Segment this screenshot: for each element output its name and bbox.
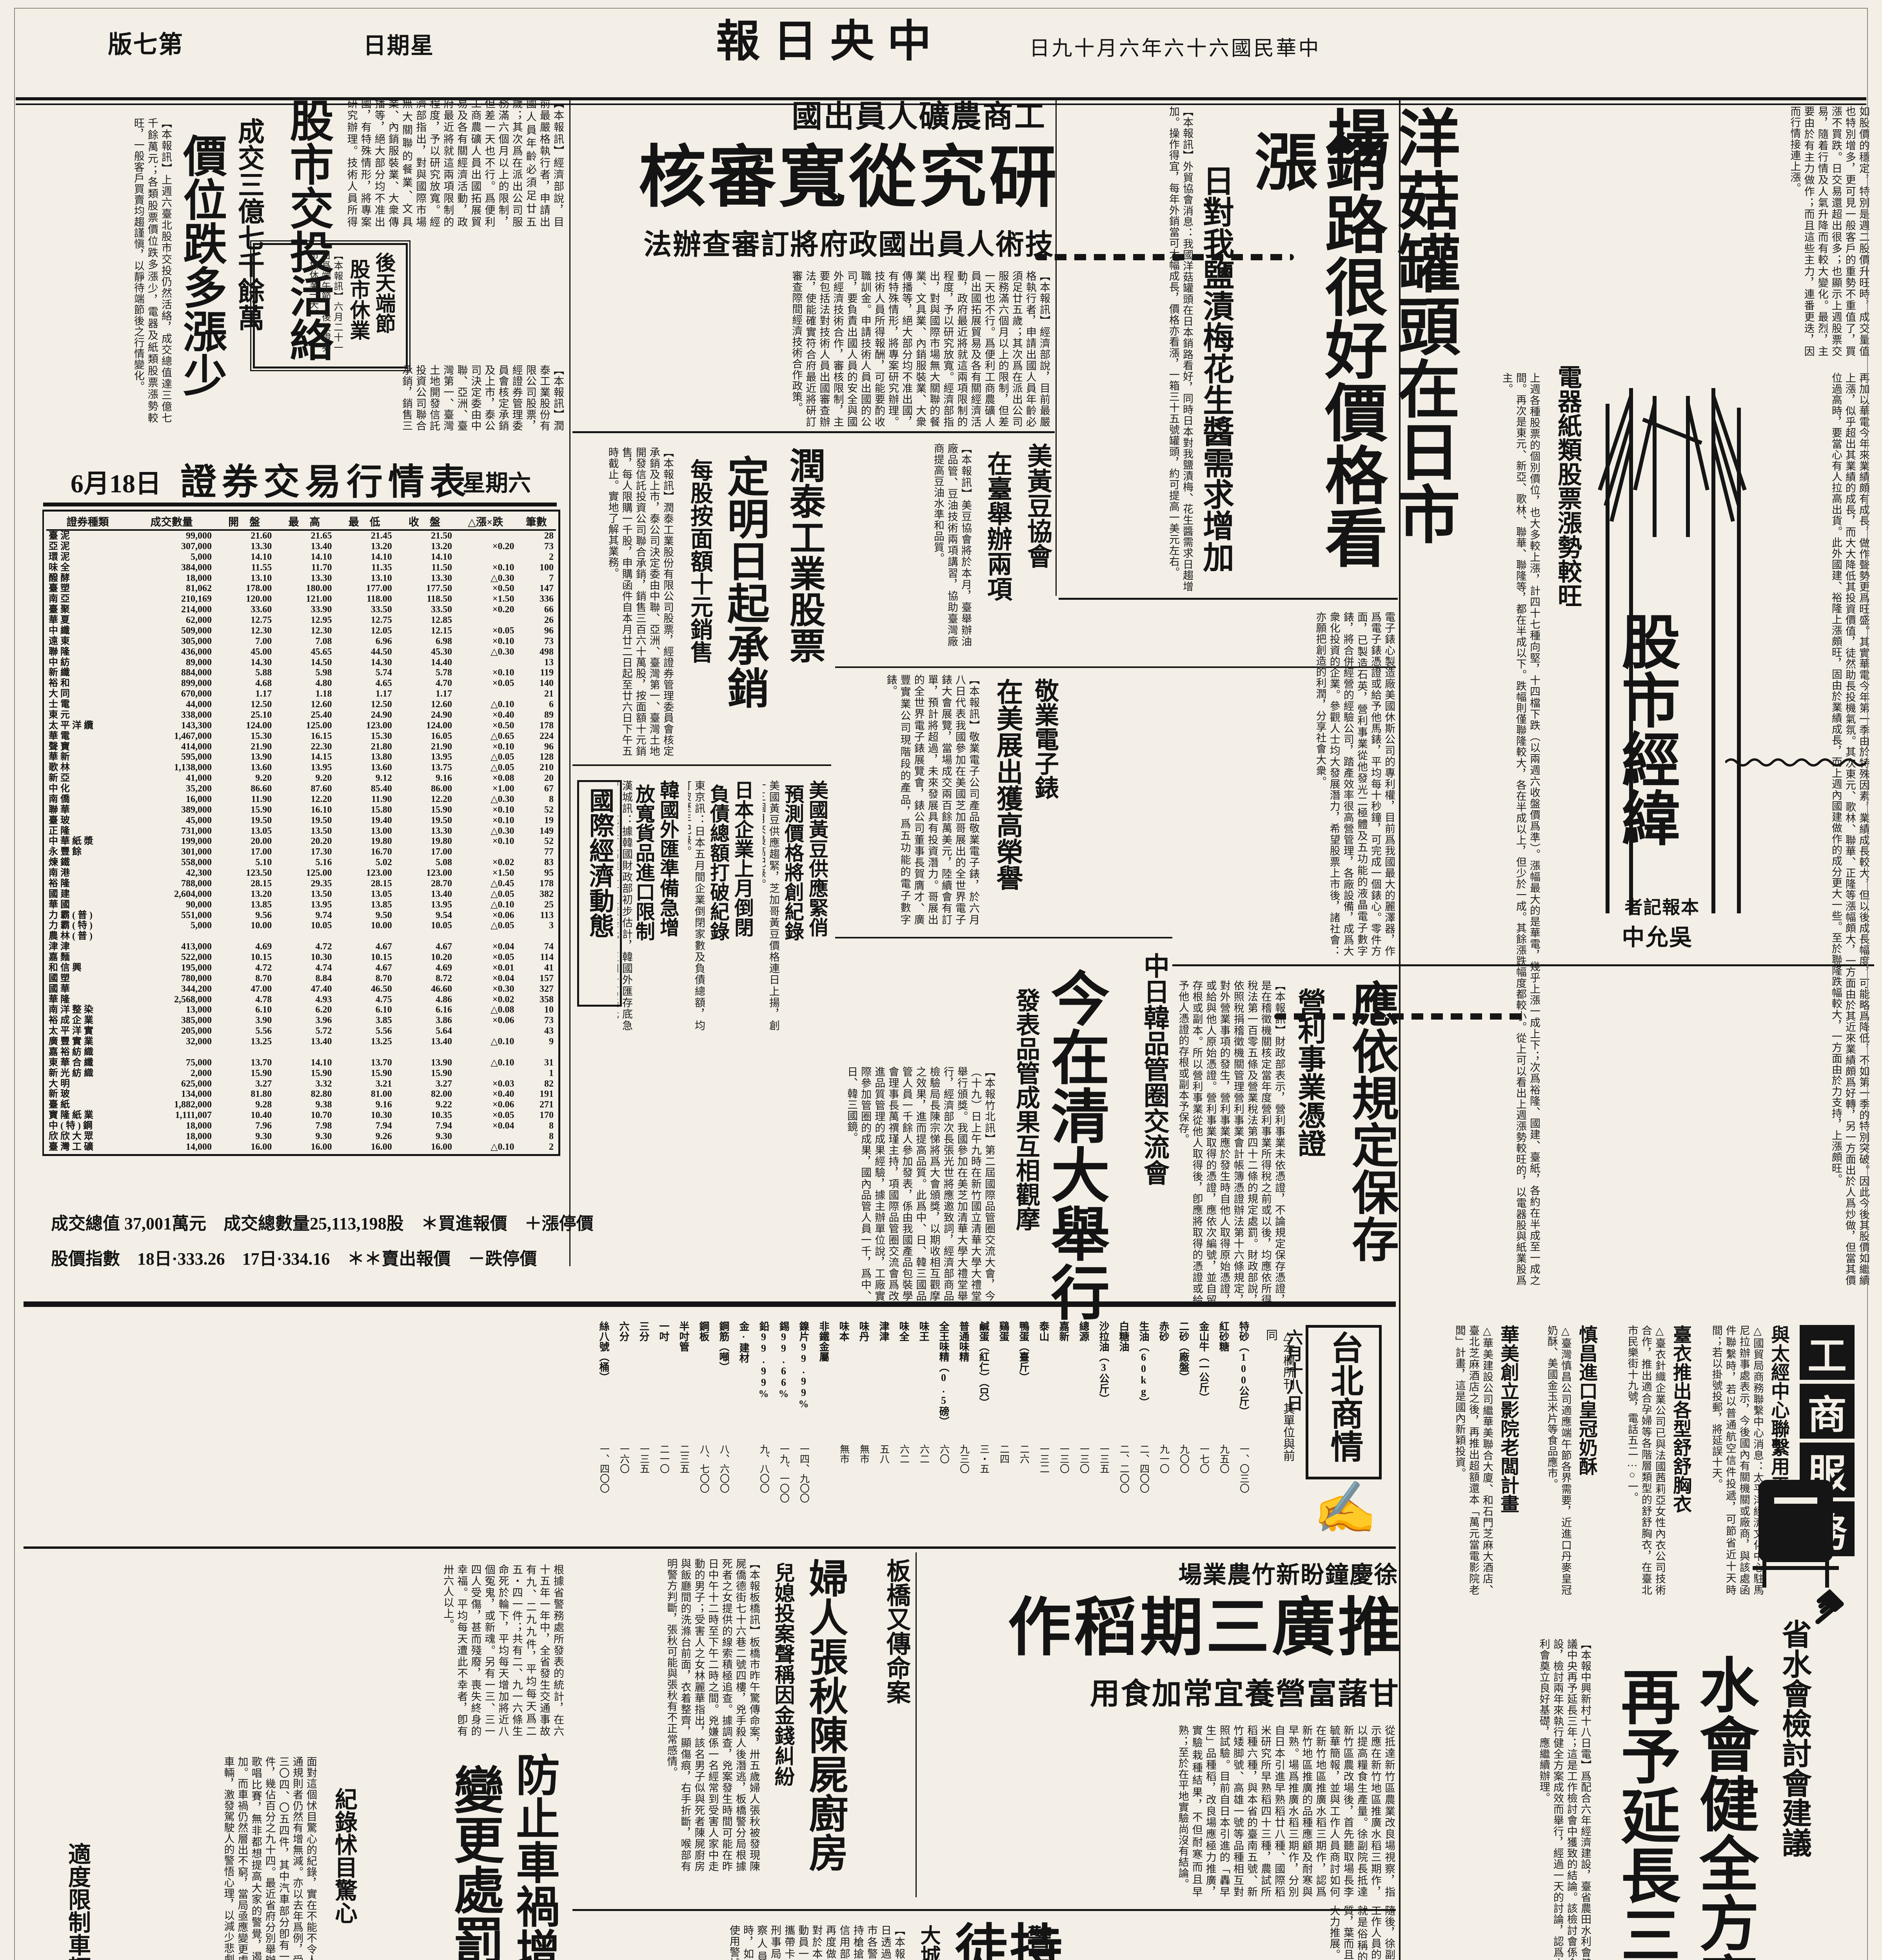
commodity-name: 金山牛（一公斤） <box>1196 1321 1211 1439</box>
robbery-headline: 持槍搶刧歹徒 <box>949 1921 1058 1960</box>
stock-table-row: 華新595,00013.9014.1513.8013.95△0.05128 <box>46 752 556 762</box>
commodity-price: 一七〇 <box>1197 1444 1211 1526</box>
commodity-name: 鴨蛋（臺斤） <box>1016 1321 1031 1439</box>
stock-table-row: 煉鐵558,0005.105.165.025.08×0.0283 <box>46 857 556 868</box>
stock-table-row: 永豐餘301,00017.0017.3016.7017.0077 <box>46 847 556 857</box>
commodity-name: 生油（60kg） <box>1136 1321 1151 1439</box>
commodity-price: 二、二〇〇 <box>1117 1444 1131 1526</box>
stock-table-row: 華國90,00013.8513.9513.8513.95△0.1025 <box>46 900 556 910</box>
commodity-item: 鎳片99.99%一四、九〇〇 <box>796 1321 811 1526</box>
commodity-price: 五八 <box>877 1444 891 1526</box>
stock-table-row: 大同670,0001.171.181.171.1721 <box>46 689 556 699</box>
commodity-item: 鹹蛋（紅仁）（只）三・五 <box>976 1321 991 1526</box>
water-headline-2: 再予延長三年 <box>1611 1666 1678 1960</box>
hrule-e3 <box>572 1909 1396 1911</box>
biz-item-4-body: △華美建設公司繼華美聯合大廈、和石門芝麻大酒店、臺北芝麻酒店之後，再推出超額還本… <box>1439 1325 1494 1595</box>
stock-table: 證券種類 成交數量 開 盤 最 高 最 低 收 盤 △漲×跌 筆數 臺泥99,0… <box>42 510 560 1156</box>
vrule-a2 <box>1055 98 1057 596</box>
commodity-name: 特砂（100公斤） <box>1236 1321 1251 1439</box>
intl-brief-2-body: 東京訊：日本五月間企業倒閉家數及負債總額，均打破歷年紀錄。 <box>688 780 706 1031</box>
stock-table-row: 津津413,0004.694.724.674.67×0.0474 <box>46 942 556 952</box>
commodity-name: 總源 <box>1076 1321 1091 1439</box>
commodity-price: 二、四〇〇 <box>1137 1444 1151 1526</box>
stock-table-row: 太平洋實205,0005.565.725.565.6443 <box>46 1026 556 1036</box>
traffic-headline-1: 防止車禍增加 <box>510 1752 557 1960</box>
commodity-item: 鋼筋（噸）八、六〇〇 <box>716 1321 731 1526</box>
commodity-price: 無市 <box>837 1444 851 1526</box>
commodity-name: 味丹 <box>856 1321 871 1439</box>
rice-kicker: 徐慶鐘盼新竹農業場 <box>1059 1562 1396 1587</box>
commodity-item: 全王味精（0.5磅）六〇 <box>936 1321 951 1526</box>
stock-table-row: 嘉裕紡織 <box>46 1047 556 1058</box>
commodity-name: 沙拉油（3公斤） <box>1096 1321 1111 1439</box>
stock-table-row: 裕成企業385,0003.903.963.853.86×0.0673 <box>46 1015 556 1026</box>
stock-table-row: 力霸(普)551,0009.569.749.509.54×0.06113 <box>46 910 556 921</box>
voucher-headline: 應依規定保存 <box>1345 980 1397 1313</box>
jingye-headline: 在美展出獲高榮譽 <box>988 678 1027 913</box>
stock-table-row: 嘉麵522,00010.1510.3010.1510.20×0.05114 <box>46 952 556 963</box>
mushroom-subhead: 日對我鹽漬梅花生醬需求增加 <box>1199 165 1232 596</box>
stock-table-row: 中(特)鋼18,0007.967.987.947.94×0.048 <box>46 1121 556 1131</box>
commodity-name: 錫99.66% <box>776 1321 791 1439</box>
intl-brief-1-body: 美國黃豆供應趨緊，芝加哥黃豆價格連日上揚，創十三個月來最高紀錄。 <box>763 780 780 1031</box>
stock-table-row: 中紡89,00014.3014.5014.3014.4013 <box>46 657 556 668</box>
commodity-name: 鷄蛋 <box>996 1321 1011 1439</box>
gujing-byline-label: 本報記者 <box>1604 898 1698 917</box>
rice-headline: 推廣三期稻作 <box>1004 1593 1396 1660</box>
intl-brief-3-line1: 韓國外匯準備急增 <box>654 780 682 960</box>
commodity-name: 白糖油 <box>1116 1321 1131 1439</box>
stock-table-row: 士電44,00012.5012.6012.5012.60△0.106 <box>46 699 556 710</box>
stock-table-row: 聯華389,00015.9016.1015.8015.90×0.1052 <box>46 805 556 815</box>
stock-table-body: 臺泥99,00021.6021.6521.4521.5028亞泥307,0001… <box>46 530 556 1152</box>
rice-subhead: 甘藷富營養宜常加食用 <box>972 1678 1396 1710</box>
voucher-kicker: 營利事業憑證 <box>1294 988 1324 1207</box>
biz-item-2-head: 臺衣推出各型舒舒胸衣 <box>1666 1325 1694 1592</box>
biz-item-3-head: 慎昌進口皇冠奶酥 <box>1572 1325 1600 1592</box>
abroad-subhead: 技術人員出國政府將訂審查辦法 <box>576 229 1051 260</box>
commodity-name: 絲八號（桶） <box>596 1321 611 1439</box>
traffic-body2: 面對這個怵目驚心的紀錄，實在不能不令人警惕。可是違反交通規則者仍然有增無減。亦以… <box>98 1756 318 1960</box>
hrule-b2 <box>572 764 831 766</box>
vrule-right <box>1399 98 1401 1960</box>
holiday-title-1: 後天端節 <box>369 252 398 350</box>
banqiao-headline: 婦人張秋陳屍廚房 <box>804 1558 845 1880</box>
stocks-active-body-2: 【本報訊】經濟部說，目前最嚴格執行者，申請出國人員年齡必須足廿五歲；其次爲在派出… <box>345 98 565 227</box>
runtai-body: 【本報訊】潤泰工業股份有限公司股票，經證券管理委員會核定承銷及上市，泰公司決定委… <box>572 447 674 757</box>
commodity-item: 赤砂九一〇 <box>1156 1321 1171 1526</box>
commodity-item: 六分一六〇 <box>616 1321 631 1526</box>
stock-table-row: 南僑16,00011.9012.2011.9012.20△0.308 <box>46 794 556 805</box>
stock-table-row: 華夏62,00012.7512.9512.7512.8526 <box>46 615 556 626</box>
stock-totals-1: 成交總值 37,001萬元 成交總數量25,113,198股 ＊買進報價 ＋漲停… <box>51 1209 594 1234</box>
commodity-price: 六二 <box>917 1444 931 1526</box>
intl-brief-2-line2: 負債總額打破紀錄 <box>704 784 732 964</box>
commodity-item: 鋼板八、七〇〇 <box>696 1321 711 1526</box>
stock-table-row: 新纖884,0005.885.985.745.78×0.10119 <box>46 668 556 678</box>
stock-table-row: 正隆731,00013.0513.5013.0013.30△0.30149 <box>46 826 556 837</box>
commodity-item: 嘉新一三〇 <box>1056 1321 1071 1526</box>
abroad-kicker: 工商農礦人員出國 <box>612 100 1043 132</box>
water-body: 【本報中興新村十八日電】爲配合六年經濟建設，臺省農田水利會健全方案，工作檢討會昨… <box>1408 1639 1592 1960</box>
commodity-name: 津津 <box>876 1321 891 1439</box>
biz-item-3-body: △臺灣慎昌公司適應端午節各界需要，近進口丹麥皇冠奶酥、美國金玉米片等食品應市。 <box>1529 1325 1572 1595</box>
soybean-body: 【本報訊】美豆協會將於本月，臺舉辦油廠品管、豆油技術兩項講習，協助臺灣廠商提高豆… <box>859 443 972 647</box>
gujing-byline: 吳允中 <box>1611 925 1690 949</box>
commodity-name: 六分 <box>616 1321 631 1439</box>
intl-brief-1-line2: 預測價格將創紀錄 <box>779 784 807 964</box>
commodity-item: 味本無市 <box>836 1321 851 1526</box>
stock-table-row: 中化35,20086.6087.6085.4086.00×1.0067 <box>46 784 556 794</box>
stock-table-row: 聲寶414,00021.9022.3021.8021.90×0.1096 <box>46 742 556 752</box>
commodity-name: 普通味精 <box>956 1321 971 1439</box>
writing-hand-icon: ✍ <box>1313 1478 1377 1538</box>
qc-subhead: 發表品管成果互相觀摩 <box>1008 988 1043 1301</box>
traffic-headline-2: 變更處罰方式 <box>447 1764 501 1960</box>
intl-briefs: 美國黃豆供應緊俏 預測價格將創紀錄 美國黃豆供應趨緊，芝加哥黃豆價格連日上揚，創… <box>619 780 831 1054</box>
commodity-item: 味王六二 <box>916 1321 931 1526</box>
weekday-label: 星期日 <box>345 33 431 58</box>
banqiao-kicker: 板橋又傳命案 <box>878 1558 914 1723</box>
stock-table-row: 臺玻45,00019.5019.5019.4019.50×0.1019 <box>46 815 556 826</box>
rice-body: 從抵達新竹區農業改良場視察，指示應在新竹地區推廣水稻三期作，以提高糧食生產量。徐… <box>921 1725 1396 1897</box>
commodity-price: 九〇〇 <box>1177 1444 1191 1526</box>
rice-body2: 隨後，徐副院長巡視稻作田間實驗工作，對於工作人員的辛勞甚表嘉許。徐副院長說：甘藷… <box>1172 1905 1396 1960</box>
soybean-kicker: 美黃豆協會 <box>1019 443 1055 608</box>
stock-table-date: 6月18日 <box>71 463 161 500</box>
vrule-a1 <box>569 98 570 1266</box>
banqiao-body: 【本報板橋訊】板橋市昨午驚傳命案，卅五歲婦人張秋被發現陳屍僑德街七十六巷二號四樓… <box>572 1558 761 1872</box>
commodity-item: 味全六二 <box>896 1321 911 1526</box>
gujing-body2: 如股價的穩定，特別是週二股價升旺時，成交量值也特別增多，更可見一般客戶的重勢不重… <box>1408 106 1870 357</box>
commodity-name: 味王 <box>916 1321 931 1439</box>
stock-table-row: 國華344,20047.0047.4046.5046.60×0.30327 <box>46 984 556 995</box>
commodity-name: 二砂（廠盤） <box>1176 1321 1191 1439</box>
stock-table-weekday: 星期六 <box>463 465 531 497</box>
water-headline-1: 水會健全方案 <box>1690 1654 1757 1960</box>
stock-totals-2: 股價指數 18日·333.26 17日·334.16 ＊＊賣出報價 －跌停價 <box>51 1245 537 1270</box>
commodity-item: 金·建材 <box>736 1321 751 1526</box>
biz-box-char-1: 工 <box>1800 1325 1855 1380</box>
biz-box-char-2: 商 <box>1800 1384 1855 1439</box>
qc-body: 【本報竹北訊】第二屆國際品管圈交流大會，今（十九）日上午九時在新竹國立清華大學大… <box>737 1066 996 1301</box>
taipei-market-note: △本欄所刊 其單位與前同 <box>1262 1329 1296 1470</box>
commodity-price: 一三二 <box>1037 1444 1051 1526</box>
robbery-body: 【本報訊】刑事警察局昨日透過八號分機，通令省市各警察機關，嚴密搜捕持槍搶刧彰化竹… <box>576 1925 906 1960</box>
holiday-title-2: 股市休業 <box>343 259 372 357</box>
taipei-market-box: 台北商情 <box>1306 1325 1382 1479</box>
commodity-item: 半吋管二三五 <box>676 1321 691 1526</box>
runtai-teaser: 【本報訊】潤泰工業股份有限公司股票，經證券管理委員會核定承銷及上市，泰公司決定委… <box>400 365 565 431</box>
commodity-price: 八、六〇〇 <box>717 1444 731 1526</box>
commodity-name: 味全 <box>896 1321 911 1439</box>
hrule-mushroom-bot <box>1059 598 1398 600</box>
commodity-name: 三分 <box>636 1321 651 1439</box>
commodity-price: 一三五 <box>1097 1444 1111 1526</box>
stock-table-row: 華電1,467,00015.3016.1515.3016.05△0.65224 <box>46 731 556 742</box>
commodity-item: 總源一三〇 <box>1076 1321 1091 1526</box>
stock-table-row: 中纖509,00012.3012.3012.0512.15×0.0596 <box>46 626 556 636</box>
hrule-strip-top <box>24 1301 1396 1307</box>
jingye-body: 【本報訊】敬業電子公司產品敬業電子錶，於六月八日代表我國參加在美國芝加哥展出的全… <box>835 674 980 925</box>
commodity-item: 鉛99.99%九、八〇〇 <box>756 1321 771 1526</box>
stock-table-row: 欣欣大眾18,0009.309.309.269.308 <box>46 1131 556 1142</box>
hrule-strip-bot <box>24 1546 1396 1549</box>
commodity-item: 津津五八 <box>876 1321 891 1526</box>
commodity-price: 一四、九〇〇 <box>797 1444 811 1526</box>
masthead-date: 中華民國六十六年六月十九日 <box>1012 37 1317 59</box>
intl-brief-1-line1: 美國黃豆供應緊俏 <box>803 780 831 960</box>
stocks-active-body: 【本報訊】上週六臺北股市交投仍然活絡，成交總值達三億七千餘萬元；各類股票價位跌多… <box>24 118 173 423</box>
stock-table-row: 臺泥99,00021.6021.6521.4521.5028 <box>46 530 556 541</box>
mailbox-graphic <box>1737 1458 1855 1592</box>
commodity-item: 鷄蛋二四 <box>996 1321 1011 1526</box>
stock-table-row: 味全384,00011.5511.7011.3511.50×0.10100 <box>46 563 556 573</box>
stock-table-row: 和信興195,0004.724.744.674.69×0.0141 <box>46 963 556 973</box>
edition-label: 第七版 <box>78 31 180 57</box>
qc-headline: 今在清大舉行 <box>1043 968 1106 1352</box>
stock-table-row: 南亞210,169120.00121.00118.00118.50×1.5033… <box>46 594 556 604</box>
commodity-price: 一、〇三〇 <box>1237 1444 1251 1526</box>
traffic-body: 根據省警務處所發表的統計，在六十五年一年中，全省發生交通事故有九、二九九件，平均… <box>298 1564 565 1737</box>
commodity-price: 二六 <box>1017 1444 1031 1526</box>
traffic-sub2: 紀錄怵目驚心 <box>327 1788 360 1952</box>
stock-table-row: 國建2,604,00013.2013.5013.0513.40△0.05382 <box>46 889 556 900</box>
commodity-price: 二三五 <box>677 1444 691 1526</box>
commodity-price: 一九、一〇〇 <box>777 1444 791 1526</box>
holiday-notice-box: 後天端節 股市休業 【本報訊】六月二十一日爲端午節，後天證券市場休業一天。 <box>253 243 408 368</box>
gujing-title: 股市經緯 <box>1611 612 1679 886</box>
commodity-name: 一吋 <box>656 1321 671 1439</box>
intl-brief-2-line1: 日本企業上月倒閉 <box>728 780 757 960</box>
commodity-item: 紅砂糖九五〇 <box>1216 1321 1231 1526</box>
commodity-item: 三分一三五 <box>636 1321 651 1526</box>
runtai-subhead: 每股按面額十元銷售 <box>683 459 716 733</box>
intl-brief-3-body: 漢城訊：據韓國財政部初步估計，韓國外匯存底急增，月底更可高達三十五億美元，至四千… <box>618 780 633 1031</box>
commodity-item: 沙拉油（3公斤）一三五 <box>1096 1321 1111 1526</box>
stock-table-row: 聯隆436,00045.0045.6544.5045.30△0.30498 <box>46 647 556 657</box>
stocks-active-sub2: 價位跌多漲少 <box>176 133 225 423</box>
commodity-price: 三・五 <box>977 1444 991 1526</box>
intl-brief-3-line2: 放寬貨品進口限制 <box>630 784 658 964</box>
hrule-b1 <box>572 431 1055 433</box>
commodity-price: 六二 <box>897 1444 911 1526</box>
stock-table-header: 證券種類 成交數量 開 盤 最 高 最 低 收 盤 △漲×跌 筆數 <box>46 513 556 530</box>
commodity-item: 一吋二一〇 <box>656 1321 671 1526</box>
commodity-item: 非鐵金屬 <box>816 1321 831 1526</box>
commodity-item: 特砂（100公斤）一、〇三〇 <box>1236 1321 1251 1526</box>
stock-table-row: 太平洋纜143,300124.00125.00123.00124.00×0.50… <box>46 720 556 731</box>
commodity-price: 九、八〇〇 <box>757 1444 771 1526</box>
commodity-name: 鉛99.99% <box>756 1321 771 1439</box>
commodity-name: 鋼筋（噸） <box>716 1321 731 1439</box>
commodity-item: 金山牛（一公斤）一七〇 <box>1196 1321 1211 1526</box>
abroad-headline: 研究從寬審核 <box>612 141 1051 212</box>
stock-table-row: 臺塑81,062178.00180.00177.00177.50×0.50147 <box>46 583 556 594</box>
commodity-price: 無市 <box>857 1444 871 1526</box>
commodity-price: 一三五 <box>637 1444 651 1526</box>
soybean-headline: 在臺舉辦兩項 <box>979 451 1015 639</box>
taipei-market-title: 台北商情 <box>1326 1331 1361 1472</box>
mushroom-body: 【本報訊】外貿協會消息：我國洋菇罐頭在日本銷路看好，同時日本對我鹽漬梅、花生醬需… <box>1061 106 1194 592</box>
stock-table-row: 臺紙1,882,0009.289.389.169.22×0.06271 <box>46 1100 556 1110</box>
stock-table-row: 農林(普) <box>46 931 556 942</box>
mushroom-headline-2: 銷路很好價格看漲 <box>1245 129 1385 623</box>
stock-table-row: 環泥5,00014.1014.1014.1014.102 <box>46 552 556 563</box>
stock-table-row: 遠東305,0007.007.086.966.98×0.1073 <box>46 636 556 647</box>
stock-table-row: 亞泥307,00013.3013.4013.2013.20×0.2073 <box>46 541 556 552</box>
qc-kicker: 中日韓品管圈交流會 <box>1135 953 1173 1243</box>
commodity-name: 鋼板 <box>696 1321 711 1439</box>
stock-table-row: 新亞41,0009.209.209.129.16×0.0820 <box>46 773 556 784</box>
commodity-price: 八、七〇〇 <box>697 1444 711 1526</box>
stock-table-row: 新光紡織2,00015.9015.9015.9015.901 <box>46 1068 556 1079</box>
stock-table-row: 醱酵18,00013.1013.3013.1013.30△0.307 <box>46 573 556 584</box>
hrule-qc <box>835 937 1172 938</box>
stock-title-rule <box>43 503 557 506</box>
masthead-title: 中央日報 <box>714 18 933 65</box>
commodity-item: 白糖油二、二〇〇 <box>1116 1321 1131 1526</box>
commodity-name: 金·建材 <box>736 1321 751 1439</box>
stock-table-row: 東華合纖75,00013.7014.1013.7013.90△0.1031 <box>46 1058 556 1068</box>
stock-table-row: 力霸(特)5,00010.0010.0510.0010.05△0.053 <box>46 920 556 931</box>
commodity-name: 紅砂糖 <box>1216 1321 1231 1439</box>
stock-table-row: 廣豐實業32,00013.2513.4013.2513.40△0.109 <box>46 1036 556 1047</box>
stock-table-title: 證券交易行情表 <box>180 453 471 505</box>
abroad-body: 【本報訊】經濟部說，目前最嚴格執行者，申請出國人員年齡必須足廿五歲；其次爲在派出… <box>572 270 1051 427</box>
commodity-price: 六〇 <box>937 1444 951 1526</box>
stock-table-row: 國塑780,0008.708.848.708.72×0.04157 <box>46 973 556 984</box>
gujing-body3: 再加以華電今年來業績頗有成長，做作聲勢更爲旺盛。其實華電今年第一季由於特殊因素，… <box>1698 372 1870 1286</box>
traffic-sub1: 適度限制車輛 <box>61 1842 94 1960</box>
commodity-name: 嘉新 <box>1056 1321 1071 1439</box>
stock-table-row: 中華紙漿199,00020.0020.2019.8019.80×0.1052 <box>46 836 556 847</box>
biz-item-4-head: 華美創立影院老闆計畫 <box>1494 1325 1521 1592</box>
commodity-item: 普通味精九三〇 <box>956 1321 971 1526</box>
stock-table-row: 東元338,00025.1025.4024.9024.90×0.4089 <box>46 710 556 720</box>
commodity-item: 絲八號（桶）一、四〇〇 <box>596 1321 611 1526</box>
biz-item-2-body: △臺衣針織企業公司已與法國茜莉亞女性內衣公司技術合作，推出適合孕婦等各階層類型的… <box>1608 1325 1666 1595</box>
intl-section-title: 國際經濟動態 <box>577 780 622 1007</box>
commodity-price: 九三〇 <box>957 1444 971 1526</box>
runtai-headline: 定明日起承銷 <box>721 455 767 745</box>
voucher-body: 【本報訊】財政部表示，營利事業未依憑證，不論規定保存憑證，是在稽徵機關核定當年度… <box>1176 980 1286 1305</box>
vrule-d1 <box>916 1552 917 1897</box>
gujing-body: 上週各種股票的個別價位，也大多較上漲，計四十七種向堅，十四檔下跌（以兩週六收盤價… <box>1408 372 1541 1286</box>
stock-table-row: 大明625,0003.273.323.213.27×0.0382 <box>46 1079 556 1089</box>
commodity-name: 味本 <box>836 1321 851 1439</box>
stock-table-row: 裕隆788,00028.1529.3528.1528.70△0.45178 <box>46 878 556 889</box>
commodity-name: 鎳片99.99% <box>796 1321 811 1439</box>
commodity-price: 一三〇 <box>1057 1444 1071 1526</box>
commodity-item: 味丹無市 <box>856 1321 871 1526</box>
stock-table-row: 南港42,300123.50125.00123.00123.00×1.5095 <box>46 868 556 878</box>
commodity-price: 一三〇 <box>1077 1444 1091 1526</box>
stock-table-row: 新玻134,00081.8082.8081.0082.00×0.40191 <box>46 1089 556 1100</box>
newspaper-page: 第七版 星期日 中央日報 中華民國六十六年六月十九日 【本報訊】上週六臺北股市交… <box>0 0 1882 1960</box>
stock-table-row: 寶隆紙業1,111,00710.4010.7010.3010.35×0.0517… <box>46 1110 556 1121</box>
water-kicker: 省水會檢討會建議 <box>1772 1619 1815 1909</box>
commodity-name: 全王味精（0.5磅） <box>936 1321 951 1439</box>
jingye-body2: 電子錶心製造廠美國休斯公司的專利權，目前爲我國最大的麗澤器，作爲電子錶憑證或給予… <box>1172 612 1396 956</box>
wavy-divider <box>1725 757 1870 768</box>
commodity-item: 鴨蛋（臺斤）二六 <box>1016 1321 1031 1526</box>
runtai-kicker: 潤泰工業股票 <box>784 447 824 698</box>
commodity-item: 生油（60kg）二、四〇〇 <box>1136 1321 1151 1526</box>
commodity-price: 九一〇 <box>1157 1444 1171 1526</box>
hrule-voucher <box>1172 964 1874 966</box>
commodity-name: 泰山 <box>1036 1321 1051 1439</box>
commodity-name: 鹹蛋（紅仁）（只） <box>976 1321 991 1439</box>
commodity-name: 赤砂 <box>1156 1321 1171 1439</box>
commodity-item: 泰山一三二 <box>1036 1321 1051 1526</box>
commodity-price: 一、四〇〇 <box>597 1444 611 1526</box>
biz-items: 與太經中心聯繫用平信 △國貿局商務聯繫中心消息：太平洋經濟文化中心駐馬尼拉辦事處… <box>1408 1325 1792 1599</box>
stock-table-row: 南洋整染13,0006.106.206.106.16△0.0810 <box>46 1005 556 1015</box>
commodity-price: 二四 <box>997 1444 1011 1526</box>
stock-table-row: 歌林1,138,00013.6013.9513.6013.75△0.05210 <box>46 762 556 773</box>
commodity-name: 半吋管 <box>676 1321 691 1439</box>
jingye-kicker: 敬業電子錶 <box>1026 678 1062 819</box>
banqiao-subhead: 兒媳投案聲稱因金錢糾紛 <box>768 1562 797 1872</box>
commodity-price: 二一〇 <box>657 1444 671 1526</box>
robbery-subhead: 大城鄉兩廟宇亦傳搶案 <box>914 1925 943 1960</box>
stock-table-row: 臺灣工礦14,00016.0016.0016.0016.00△0.102 <box>46 1142 556 1152</box>
stock-table-row: 華隆2,568,0004.784.934.754.86×0.02358 <box>46 995 556 1005</box>
gujing-subhead: 電器紙類股票漲勢較旺 <box>1550 365 1585 615</box>
commodity-item: 錫99.66%一九、一〇〇 <box>776 1321 791 1526</box>
commodity-price: 一六〇 <box>617 1444 631 1526</box>
commodity-name: 非鐵金屬 <box>816 1321 831 1439</box>
commodity-price: 九五〇 <box>1217 1444 1231 1526</box>
commodity-strip: 特砂（100公斤）一、〇三〇紅砂糖九五〇金山牛（一公斤）一七〇二砂（廠盤）九〇〇… <box>47 1321 1251 1541</box>
stock-table-row: 裕和899,0004.684.804.654.70×0.05140 <box>46 678 556 689</box>
stock-table-row: 臺聚214,00033.6033.9033.5033.50×0.2066 <box>46 604 556 615</box>
commodity-item: 二砂（廠盤）九〇〇 <box>1176 1321 1191 1526</box>
holiday-body: 【本報訊】六月二十一日爲端午節，後天證券市場休業一天。 <box>269 250 343 352</box>
